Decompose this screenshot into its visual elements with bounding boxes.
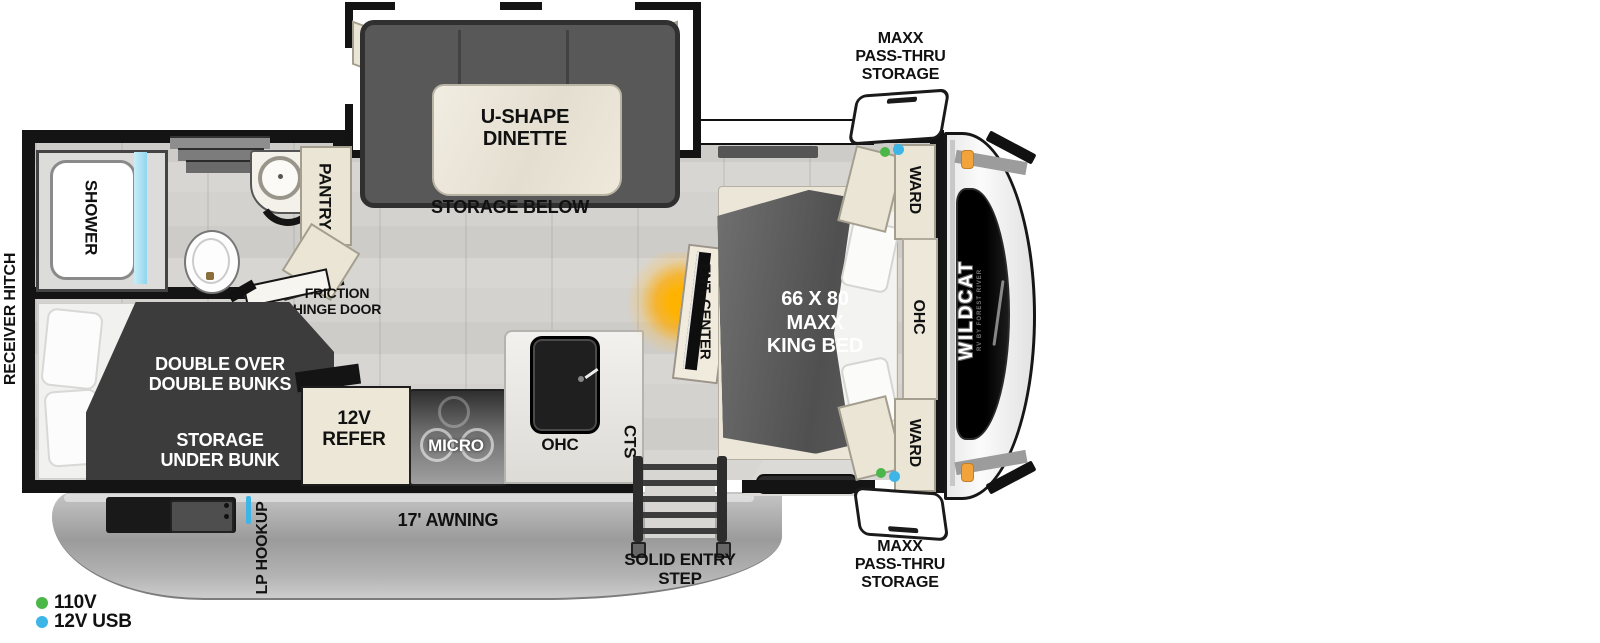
ohc-kitchen-label: OHC (520, 435, 600, 454)
burner (438, 396, 470, 428)
storage-top-label: MAXX PASS-THRU STORAGE (828, 30, 973, 84)
cap-marker-light (961, 150, 974, 169)
shower-glass (134, 152, 147, 284)
outlet-110v-dot (880, 147, 890, 157)
outlet-12v-usb-dot (893, 144, 904, 155)
kitchen-sink (530, 336, 600, 434)
bath-step (186, 160, 258, 173)
lp-hookup-label: LP HOOKUP (254, 478, 272, 618)
micro-label: MICRO (409, 436, 503, 455)
storage-door-bottom (853, 487, 950, 542)
bunks-label: DOUBLE OVER DOUBLE BUNKS (120, 354, 320, 394)
bunk-storage-label: STORAGE UNDER BUNK (125, 430, 315, 470)
storage-door-top (848, 88, 951, 145)
entry-step-rail (633, 456, 643, 542)
entry-step-label: SOLID ENTRY STEP (605, 550, 755, 588)
ohc-bedroom-label: OHC (909, 262, 927, 372)
compartment-latch-dot (224, 514, 229, 519)
legend-12v-usb-dot (36, 616, 48, 628)
storage-door-handle (888, 526, 919, 533)
shower-label: SHOWER (81, 153, 100, 283)
awning-label: 17' AWNING (378, 510, 518, 530)
entry-step-rail (717, 456, 727, 542)
bench-seam (566, 30, 569, 86)
dinette-label: U-SHAPE DINETTE (432, 106, 618, 151)
ward-top-label: WARD (905, 135, 923, 245)
storage-door-handle (887, 97, 918, 104)
outlet-110v-dot (876, 468, 886, 478)
front-window (695, 119, 874, 145)
ward-bottom-label: WARD (905, 388, 923, 498)
king-bed-label: 66 X 80 MAXX KING BED (745, 288, 885, 359)
compartment-latch-dot (224, 503, 229, 508)
slide-window-mullion (500, 2, 542, 10)
bunk-pillow (40, 307, 104, 390)
lp-hookup-marker (246, 496, 251, 524)
entry-step-rung (643, 496, 717, 502)
faucet-base (578, 376, 584, 382)
cap-marker-light (961, 463, 974, 482)
storage-bottom-label: MAXX PASS-THRU STORAGE (826, 538, 974, 592)
entry-step-rung (643, 512, 717, 518)
wall-left (22, 130, 35, 492)
outlet-12v-usb-dot (889, 471, 900, 482)
front-window-sill (718, 146, 818, 158)
wildcat-logo: WILDCAT RV BY FOREST RIVER (956, 235, 984, 385)
entry-step-rung (643, 464, 717, 470)
ent-center-label: ENT. CENTER (696, 251, 713, 371)
cap-trim (950, 140, 955, 486)
storage-below-label: STORAGE BELOW (410, 197, 610, 217)
bench-seam (458, 30, 461, 86)
floorplan-diagram: U-SHAPE DINETTE STORAGE BELOW SHOWER PAN… (0, 0, 1600, 643)
refer-label: 12V REFER (301, 408, 407, 451)
receiver-hitch-label: RECEIVER HITCH (2, 209, 20, 429)
toilet-flush (206, 272, 214, 280)
entry-step-rung (643, 528, 717, 534)
entry-step-rung (643, 480, 717, 486)
legend-12v-usb-label: 12V USB (54, 611, 174, 632)
legend-110v-dot (36, 597, 48, 609)
pantry-label: PANTRY (315, 132, 334, 262)
